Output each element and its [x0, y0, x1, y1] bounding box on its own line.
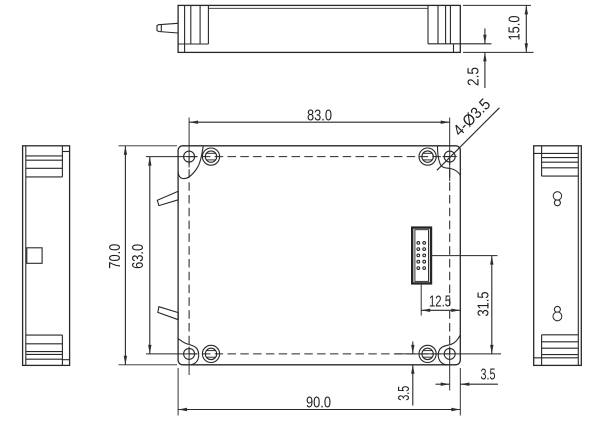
svg-text:15.0: 15.0	[507, 15, 524, 40]
svg-text:70.0: 70.0	[107, 244, 124, 269]
svg-text:3.5: 3.5	[481, 366, 496, 383]
svg-text:83.0: 83.0	[307, 107, 332, 124]
svg-text:90.0: 90.0	[306, 395, 331, 412]
svg-text:2.5: 2.5	[466, 67, 483, 86]
svg-text:31.5: 31.5	[476, 291, 493, 316]
svg-text:12.5: 12.5	[429, 293, 451, 310]
svg-text:63.0: 63.0	[130, 244, 147, 269]
svg-text:3.5: 3.5	[396, 386, 413, 401]
